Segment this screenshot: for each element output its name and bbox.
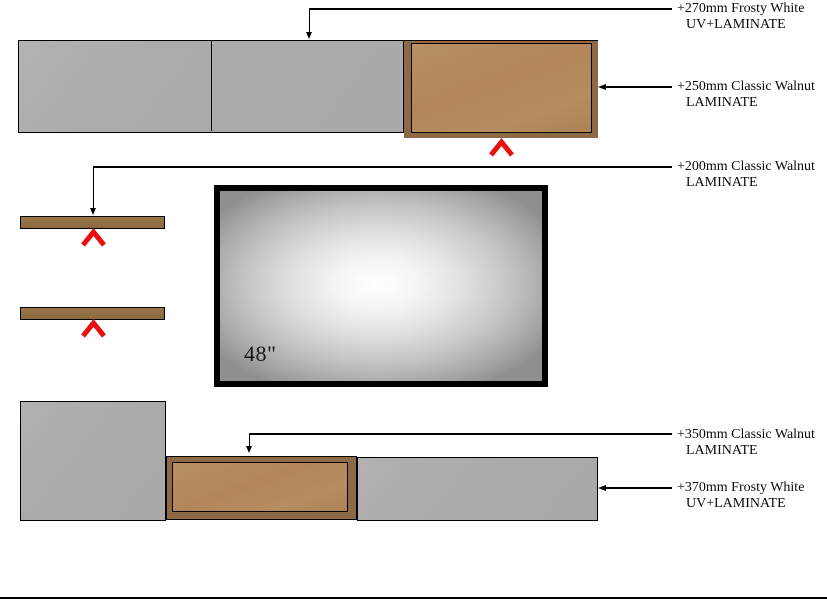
leader-arrowhead-shelf bbox=[90, 208, 96, 215]
callout-bottom-cabinet-line1: +350mm Classic Walnut bbox=[677, 427, 827, 443]
callout-shelves: +200mm Classic Walnut LAMINATE bbox=[677, 159, 827, 190]
leader-line-top-strip-h bbox=[309, 8, 672, 10]
leader-line-shelf-h bbox=[93, 166, 672, 168]
tv-unit: 48" bbox=[214, 185, 548, 387]
leader-line-bottom-cabinet-v bbox=[249, 433, 251, 447]
callout-top-cabinet-line1: +250mm Classic Walnut bbox=[677, 79, 827, 95]
callout-bottom-strip: +370mm Frosty White UV+LAMINATE bbox=[677, 480, 827, 511]
callout-top-strip: +270mm Frosty White UV+LAMINATE bbox=[677, 1, 827, 32]
top-cabinet-walnut-door bbox=[411, 43, 592, 133]
callout-bottom-strip-line2: UV+LAMINATE bbox=[677, 496, 827, 512]
tv-size-label: 48" bbox=[244, 341, 276, 367]
leader-arrowhead-top-cabinet bbox=[598, 84, 606, 90]
leader-line-bottom-strip-h bbox=[604, 487, 672, 489]
callout-bottom-cabinet: +350mm Classic Walnut LAMINATE bbox=[677, 427, 827, 458]
bottom-left-gray-box bbox=[20, 401, 166, 521]
callout-shelves-line1: +200mm Classic Walnut bbox=[677, 159, 827, 175]
leader-arrowhead-bottom-cabinet bbox=[246, 446, 252, 453]
callout-shelves-line2: LAMINATE bbox=[677, 175, 827, 191]
top-cabinet-walnut-section bbox=[404, 40, 598, 138]
top-cabinet-panel-divider bbox=[211, 41, 213, 131]
tv-screen: 48" bbox=[220, 191, 542, 381]
page-bottom-rule bbox=[0, 597, 827, 599]
top-cabinet-gray-panels bbox=[18, 40, 404, 133]
callout-bottom-cabinet-line2: LAMINATE bbox=[677, 443, 827, 459]
callout-top-cabinet-line2: LAMINATE bbox=[677, 95, 827, 111]
bottom-cabinet-walnut-drawer bbox=[172, 462, 348, 512]
bottom-gray-counter bbox=[357, 457, 598, 521]
leader-line-top-cabinet-h bbox=[604, 86, 672, 88]
red-chevron-marker-top-cabinet bbox=[488, 138, 515, 157]
red-chevron-marker-shelf-upper bbox=[80, 228, 107, 247]
bottom-cabinet-walnut-section bbox=[166, 456, 357, 520]
red-chevron-marker-shelf-lower bbox=[80, 319, 107, 338]
leader-arrowhead-top-strip bbox=[306, 32, 312, 39]
callout-top-strip-line1: +270mm Frosty White bbox=[677, 1, 827, 17]
callout-bottom-strip-line1: +370mm Frosty White bbox=[677, 480, 827, 496]
leader-line-top-strip-v bbox=[309, 8, 311, 33]
leader-arrowhead-bottom-strip bbox=[598, 485, 606, 491]
leader-line-shelf-v bbox=[93, 166, 95, 209]
elevation-drawing: 48" +270mm Frosty White UV+LAMINATE +250… bbox=[0, 0, 827, 609]
leader-line-bottom-cabinet-h bbox=[249, 433, 672, 435]
callout-top-cabinet: +250mm Classic Walnut LAMINATE bbox=[677, 79, 827, 110]
callout-top-strip-line2: UV+LAMINATE bbox=[677, 17, 827, 33]
